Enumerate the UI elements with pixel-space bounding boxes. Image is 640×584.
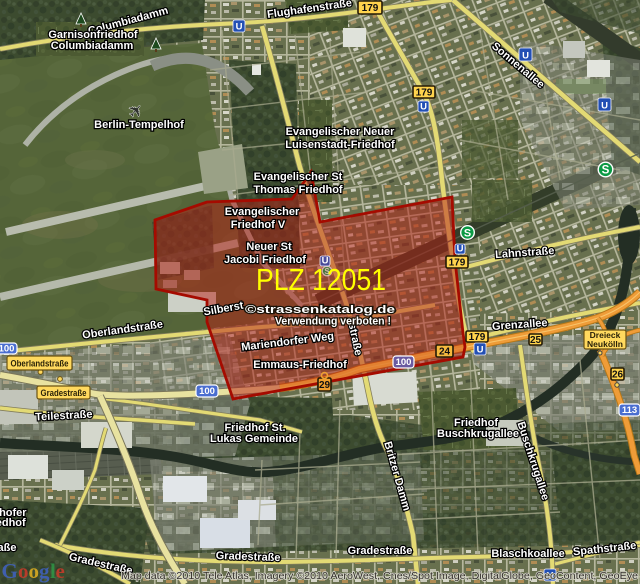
svg-text:Evangelischer: Evangelischer [225, 206, 300, 218]
svg-text:U: U [477, 344, 484, 355]
svg-text:U: U [522, 50, 529, 61]
svg-text:U: U [420, 101, 427, 112]
svg-text:24: 24 [439, 347, 451, 358]
svg-text:100: 100 [396, 357, 412, 368]
svg-text:Gradestraße: Gradestraße [216, 550, 281, 564]
svg-text:Emmaus-Friedhof: Emmaus-Friedhof [253, 359, 347, 371]
svg-text:Berlin-Tempelhof: Berlin-Tempelhof [94, 119, 184, 131]
svg-text:straße: straße [0, 542, 17, 554]
svg-text:26: 26 [612, 370, 624, 381]
svg-text:U: U [457, 243, 464, 254]
svg-text:Verwendung verboten !: Verwendung verboten ! [275, 316, 391, 328]
svg-text:Lukas Gemeinde: Lukas Gemeinde [210, 433, 298, 445]
svg-text:Gradestraße: Gradestraße [348, 545, 413, 557]
svg-text:179: 179 [362, 3, 379, 14]
svg-text:179: 179 [469, 332, 486, 343]
svg-text:29: 29 [319, 380, 331, 391]
svg-text:Evangelischer Neuer: Evangelischer Neuer [286, 126, 396, 138]
svg-text:PLZ 12051: PLZ 12051 [256, 262, 386, 297]
svg-text:e: e [56, 559, 65, 583]
svg-text:o: o [29, 559, 40, 583]
svg-text:Oberlandstraße: Oberlandstraße [11, 359, 69, 370]
svg-text:179: 179 [449, 258, 466, 269]
svg-text:Thomas Friedhof: Thomas Friedhof [253, 184, 343, 196]
svg-text:o: o [18, 559, 29, 583]
svg-text:179: 179 [416, 88, 433, 99]
svg-text:113: 113 [622, 405, 637, 416]
svg-text:rkfriedhof: rkfriedhof [0, 517, 26, 529]
svg-text:Neuer St: Neuer St [246, 241, 292, 253]
svg-text:Buschkrugallee: Buschkrugallee [437, 428, 519, 440]
svg-text:100: 100 [0, 344, 14, 355]
svg-text:25: 25 [530, 335, 542, 346]
svg-text:g: g [39, 559, 50, 583]
svg-text:Columbiadamm: Columbiadamm [51, 40, 134, 52]
svg-text:Neukölln: Neukölln [587, 339, 623, 349]
svg-text:U: U [601, 100, 608, 111]
svg-text:©strassenkatalog.de: ©strassenkatalog.de [245, 304, 395, 316]
svg-text:G: G [2, 559, 18, 583]
svg-text:Blaschkoallee: Blaschkoallee [491, 548, 564, 560]
svg-text:S: S [602, 164, 610, 177]
svg-text:100: 100 [199, 386, 215, 397]
svg-text:Friedhof V: Friedhof V [231, 219, 286, 231]
svg-text:U: U [236, 21, 243, 32]
svg-text:S: S [464, 227, 471, 239]
svg-text:Evangelischer St: Evangelischer St [254, 171, 343, 183]
svg-text:Map data ©2010 Tele Atlas, Ima: Map data ©2010 Tele Atlas, Imagery ©2010… [121, 570, 638, 582]
svg-text:Luisenstadt-Friedhof: Luisenstadt-Friedhof [285, 139, 395, 151]
svg-text:Gradestraße: Gradestraße [41, 388, 87, 399]
